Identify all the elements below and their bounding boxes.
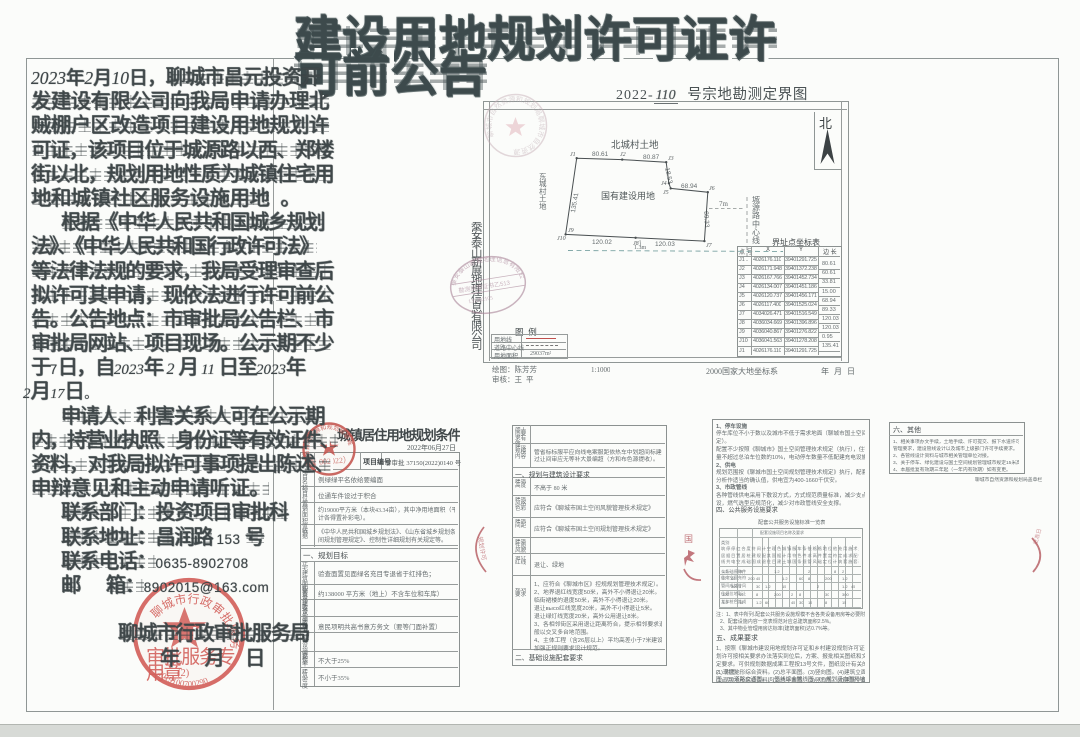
svg-text:J10: J10 xyxy=(557,236,566,242)
svg-text:J6: J6 xyxy=(709,186,715,192)
svg-text:J9: J9 xyxy=(568,228,574,234)
svg-text:J3: J3 xyxy=(668,156,674,162)
svg-text:J7: J7 xyxy=(706,243,713,249)
svg-text:批准日: 批准日 xyxy=(1031,527,1043,545)
svg-text:国: 国 xyxy=(684,534,693,544)
svg-text:J8: J8 xyxy=(633,241,639,247)
svg-text:J5: J5 xyxy=(663,190,669,196)
svg-text:J2: J2 xyxy=(620,152,626,158)
svg-text:J1: J1 xyxy=(570,152,576,158)
svg-text:131202105: 131202105 xyxy=(468,295,494,305)
svg-text:J4: J4 xyxy=(661,180,667,187)
svg-text:勘测资质证书乙513: 勘测资质证书乙513 xyxy=(458,278,511,294)
